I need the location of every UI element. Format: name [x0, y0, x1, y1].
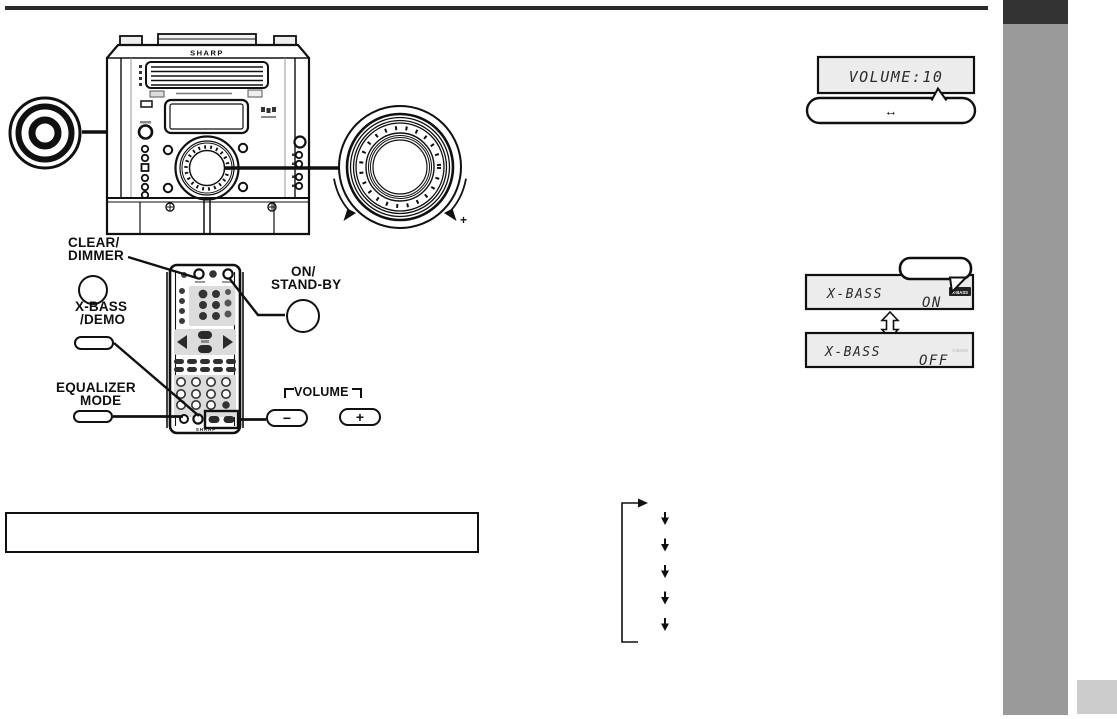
label-on-standby-line2: STAND-BY [271, 278, 341, 291]
top-rule [5, 6, 988, 10]
volume-bracket-left [284, 388, 294, 398]
label-volume: VOLUME [294, 386, 349, 399]
knob-plus-sign: + [460, 213, 467, 227]
xbass-off-label: X-BASS [824, 345, 881, 360]
sidebar-gray-bar [1003, 24, 1068, 715]
volume-display-text: VOLUME:10 [849, 68, 944, 86]
minus-sign: − [283, 410, 291, 426]
remote-on-standby-button [223, 269, 232, 278]
xbass-demo-button-shape [74, 336, 114, 350]
remote-control-illustration: SHARP [162, 258, 248, 440]
remote-volume-down-button [209, 416, 220, 423]
remote-clear-dimmer-button [194, 269, 203, 278]
cycle-loop-line [622, 503, 638, 642]
xbass-off-indicator-text: X-BASS [952, 348, 968, 353]
on-standby-button-shape [286, 299, 320, 333]
remote-misc-top-button [181, 272, 187, 278]
xbass-bubble [900, 258, 971, 279]
label-equalizer-line2: MODE [80, 394, 121, 407]
rotate-left-arrowhead [344, 209, 357, 222]
knob-zoom-callout [334, 106, 466, 228]
mode-cycle-flow-diagram [612, 494, 742, 646]
label-xbass-line2: /DEMO [80, 313, 125, 326]
cycle-loop-arrowhead [638, 499, 648, 508]
remote-volume-up-button [224, 416, 235, 423]
xbass-on-value: ON [922, 295, 942, 311]
main-unit-illustration: SHARP [0, 25, 490, 240]
remote-top-dark-button [209, 270, 217, 278]
display-callouts: VOLUME:10 ↔ X-BASS ON X-BASS X-BASS OFF … [800, 50, 980, 380]
remote-brand-logo: SHARP [196, 427, 216, 432]
volume-plus-button-shape: + [339, 408, 381, 426]
equalizer-mode-button-shape [73, 410, 113, 423]
remote-equalizer-button [180, 415, 188, 423]
page-number-tab [1077, 680, 1117, 714]
volume-bracket-right [352, 388, 362, 398]
xbass-on-label: X-BASS [826, 287, 883, 302]
step-down-arrows [661, 512, 669, 631]
sidebar-dark-block [1003, 0, 1068, 24]
remote-function-buttons [199, 289, 232, 320]
rotate-right-arrowhead [444, 209, 457, 222]
volume-minus-button-shape: − [266, 409, 308, 427]
left-right-arrow-icon: ↔ [885, 104, 898, 119]
power-badge [141, 101, 152, 107]
manual-page: SHARP [0, 0, 1117, 719]
label-clear-dimmer-line2: DIMMER [68, 249, 124, 262]
button-zoom-callout [10, 98, 80, 168]
note-box [5, 512, 479, 553]
plus-sign: + [356, 409, 364, 425]
remote-xbass-demo-button [193, 414, 202, 423]
unit-brand-logo: SHARP [190, 49, 224, 58]
xbass-off-value: OFF [919, 353, 949, 369]
unit-display-window [165, 100, 248, 133]
